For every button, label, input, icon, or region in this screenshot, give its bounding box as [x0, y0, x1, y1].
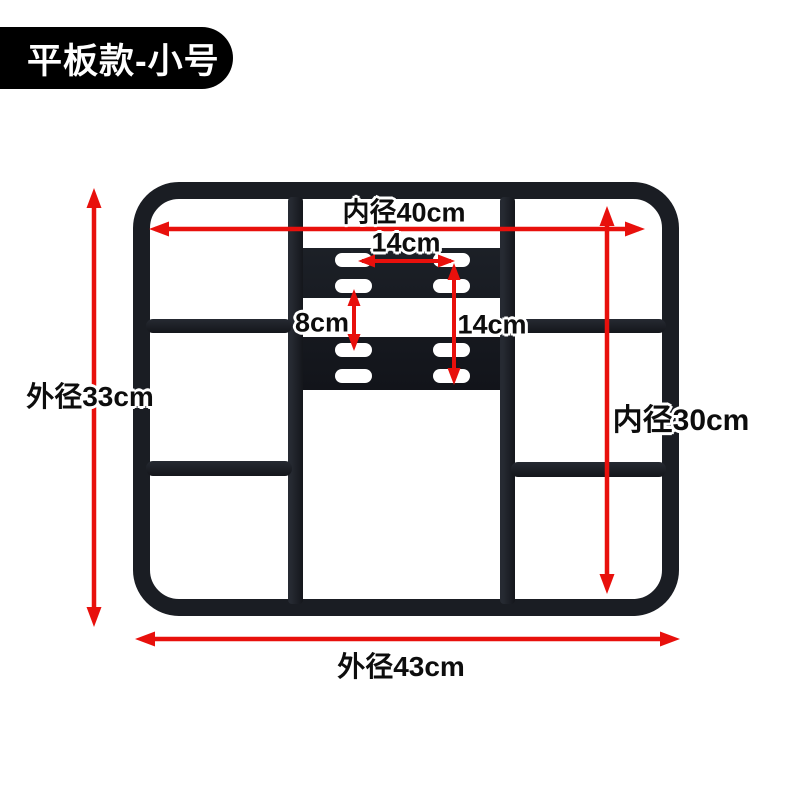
arrow-slot-gap — [348, 289, 361, 351]
dim-label-outer-height: 外径33cm — [26, 375, 154, 415]
dim-label-slot-width: 14cm — [371, 228, 440, 259]
dim-label-slot-gap: 8cm — [295, 308, 349, 339]
dim-label-inner-width: 内径40cm — [342, 191, 465, 230]
dim-label-inner-height: 内径30cm — [613, 395, 750, 439]
dim-label-slot-height: 14cm — [457, 310, 526, 341]
product-dimension-diagram: 平板款-小号 — [0, 0, 800, 800]
dim-label-outer-width: 外径43cm — [337, 645, 465, 685]
